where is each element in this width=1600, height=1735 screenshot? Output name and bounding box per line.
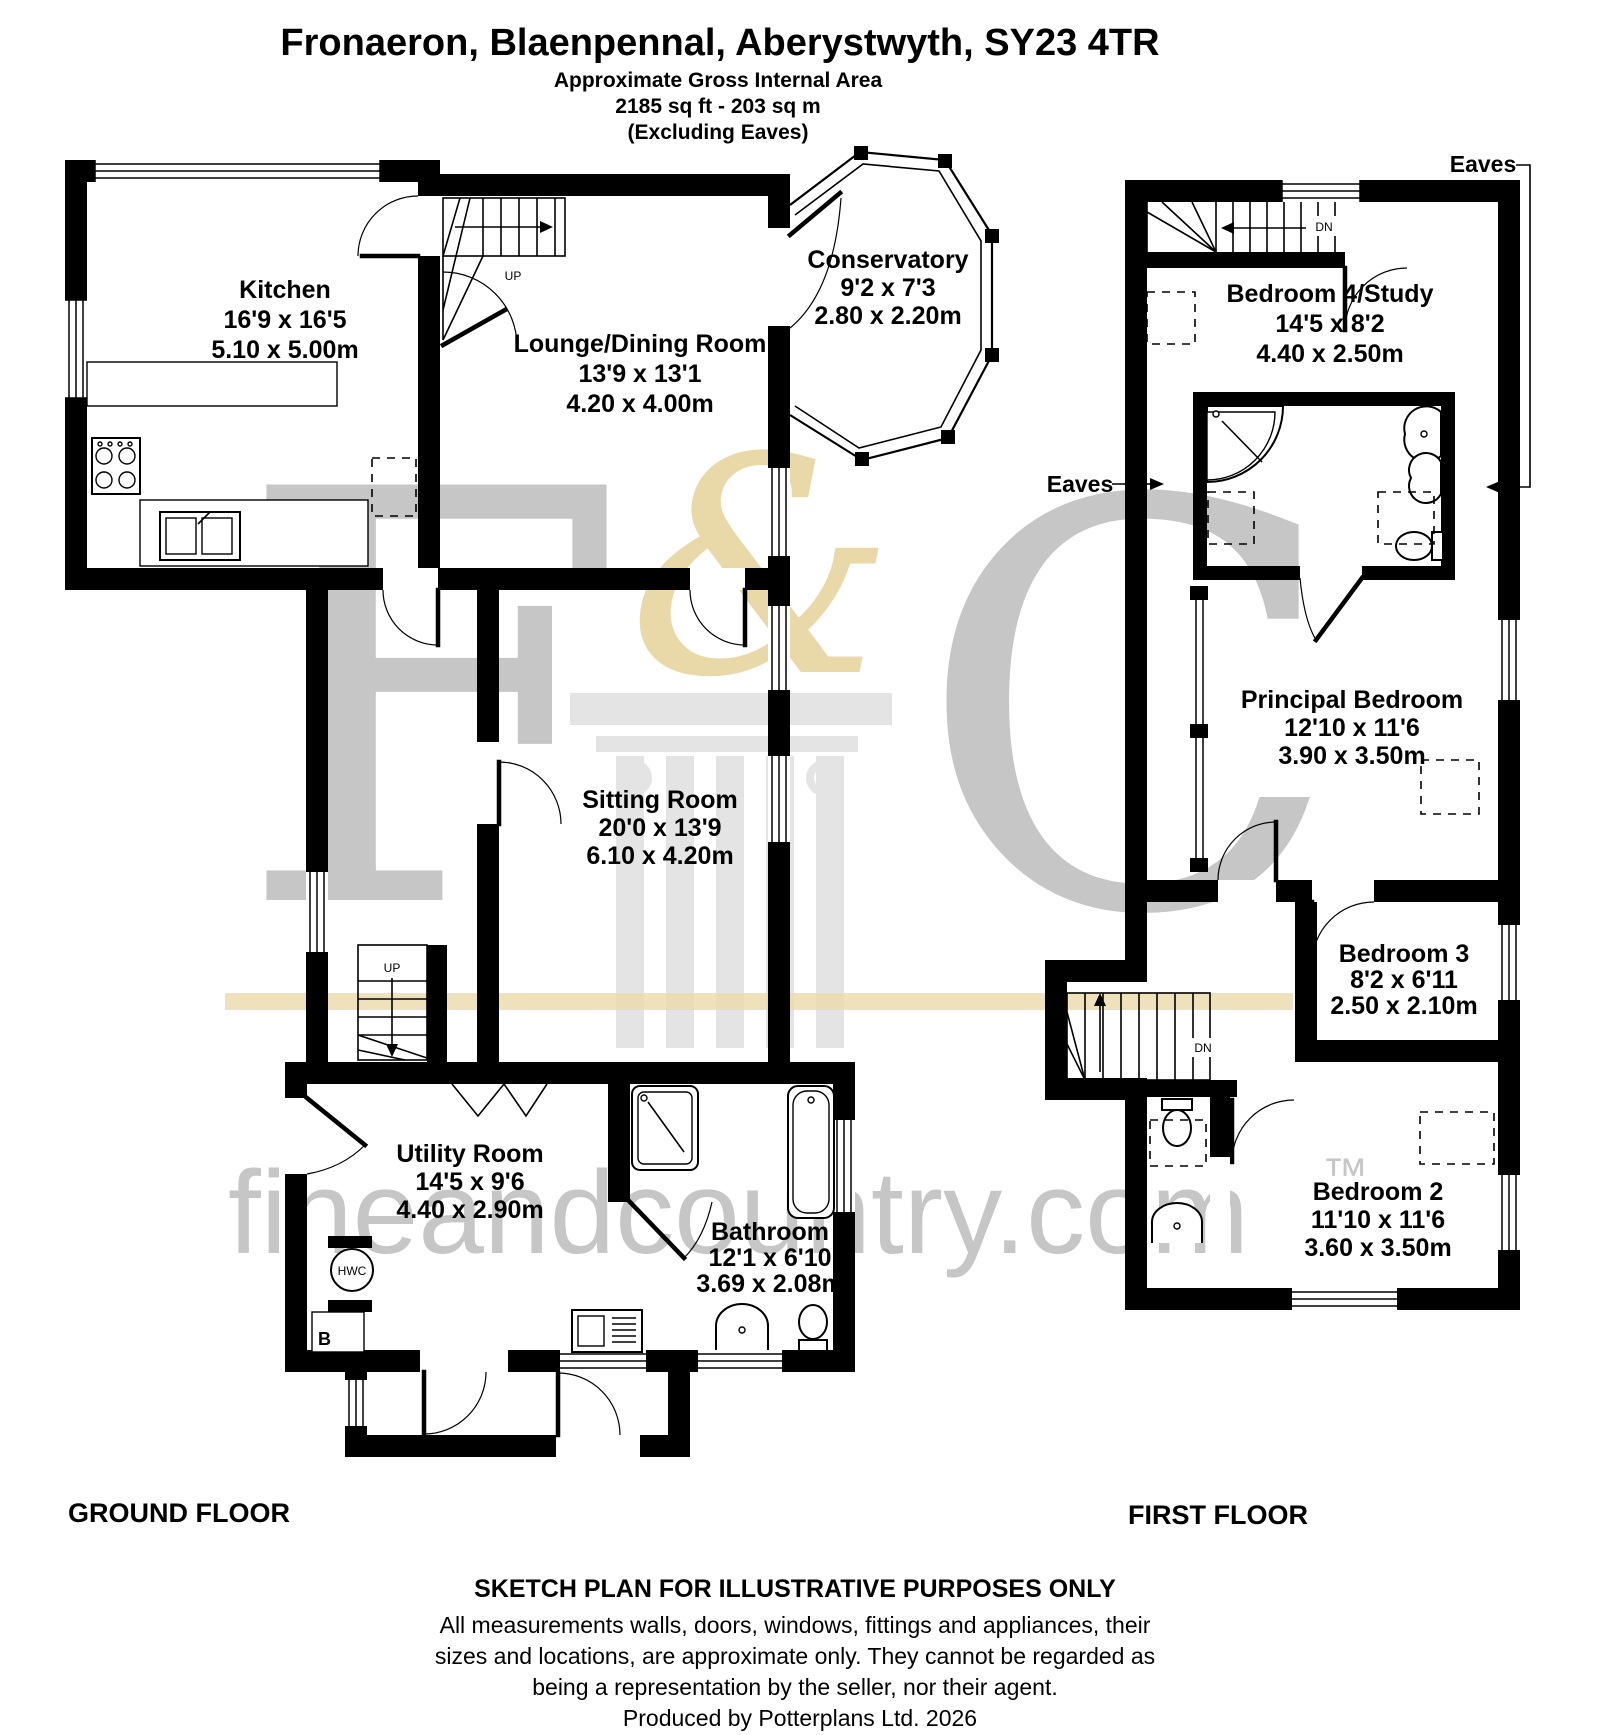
kitchen-label: Kitchen 16'9 x 16'5 5.10 x 5.00m <box>211 276 358 364</box>
bedroom4-dashed-unit <box>1147 292 1195 344</box>
ground-floor-label: GROUND FLOOR <box>68 1498 290 1528</box>
eaves-label-top-right: Eaves <box>1450 151 1517 177</box>
principal-dashed-unit <box>1421 760 1479 814</box>
utility-metric: 4.40 x 2.90m <box>396 1196 543 1224</box>
utility-bottom-window <box>560 1350 646 1372</box>
toilet-icon-ensuite <box>1396 532 1443 560</box>
bathroom-metric: 3.69 x 2.08m <box>696 1270 843 1298</box>
kitchen-left-window <box>65 300 87 398</box>
kitchen-imperial: 16'9 x 16'5 <box>223 306 346 334</box>
bathroom-name: Bathroom <box>711 1218 829 1246</box>
bathroom-bottom-window <box>698 1350 782 1372</box>
lounge-name: Lounge/Dining Room <box>514 330 767 358</box>
bathroom-imperial: 12'1 x 6'10 <box>708 1244 831 1272</box>
sitting-metric: 6.10 x 4.20m <box>586 842 733 870</box>
sitting-right-window-1 <box>768 606 790 690</box>
hob-icon <box>92 438 140 494</box>
hwc-icon: HWC <box>331 1249 373 1291</box>
bedroom3-metric: 2.50 x 2.10m <box>1330 992 1477 1020</box>
principal-imperial: 12'10 x 11'6 <box>1284 714 1420 742</box>
bedroom2-dashed-unit <box>1420 1112 1494 1164</box>
stairs-dn-label-mid: DN <box>1194 1041 1211 1055</box>
bidet-icon <box>1409 453 1441 503</box>
wc-sink-icon <box>1152 1203 1202 1243</box>
bathroom-right-window <box>833 1120 855 1212</box>
kitchen-name: Kitchen <box>239 276 331 304</box>
conservatory-metric: 2.80 x 2.20m <box>814 302 961 330</box>
lounge-imperial: 13'9 x 13'1 <box>578 360 701 388</box>
bedroom3-right-window <box>1498 925 1520 1000</box>
bedroom2-imperial: 11'10 x 11'6 <box>1311 1206 1445 1234</box>
first-floor-label: FIRST FLOOR <box>1128 1500 1308 1530</box>
conservatory-imperial: 9'2 x 7'3 <box>840 274 935 302</box>
kitchen-counter <box>87 362 337 406</box>
bedroom3-label: Bedroom 3 8'2 x 6'11 2.50 x 2.10m <box>1330 940 1477 1020</box>
bath-icon <box>788 1086 834 1218</box>
boiler-label: B <box>318 1329 331 1349</box>
bedroom3-imperial: 8'2 x 6'11 <box>1350 966 1458 994</box>
toilet-icon-wc <box>1162 1099 1192 1146</box>
header-subtitle: Approximate Gross Internal Area <box>554 69 883 92</box>
bedroom2-bottom-window <box>1292 1288 1397 1310</box>
sitting-name: Sitting Room <box>582 786 738 814</box>
utility-sink-icon <box>572 1310 642 1352</box>
page-title: Fronaeron, Blaenpennal, Aberystwyth, SY2… <box>280 22 1159 64</box>
bathroom-label: Bathroom 12'1 x 6'10 3.69 x 2.08m <box>696 1218 843 1298</box>
hall-left-window <box>306 872 328 952</box>
lounge-metric: 4.20 x 4.00m <box>566 390 713 418</box>
header-area-note: (Excluding Eaves) <box>628 121 809 144</box>
bedroom4-metric: 4.40 x 2.50m <box>1256 340 1403 368</box>
bathroom-sink-icon <box>716 1304 768 1350</box>
lounge-right-window <box>768 468 790 556</box>
stairs-up-label-top: UP <box>505 269 522 283</box>
bedroom4-name: Bedroom 4/Study <box>1227 280 1434 308</box>
bedroom4-imperial: 14'5 x 8'2 <box>1275 310 1384 338</box>
header-area: 2185 sq ft - 203 sq m <box>615 95 820 118</box>
kitchen-top-window <box>95 160 380 182</box>
landing-top-window <box>1282 180 1360 202</box>
sketch-plan-note: SKETCH PLAN FOR ILLUSTRATIVE PURPOSES ON… <box>474 1575 1116 1603</box>
eaves-label-left: Eaves <box>1047 471 1114 497</box>
hwc-label: HWC <box>338 1264 367 1278</box>
disclaimer-line-1: All measurements walls, doors, windows, … <box>440 1612 1151 1638</box>
porch-left-window <box>345 1380 367 1426</box>
bedroom2-name: Bedroom 2 <box>1313 1178 1444 1206</box>
utility-imperial: 14'5 x 9'6 <box>415 1168 524 1196</box>
utility-label: Utility Room 14'5 x 9'6 4.40 x 2.90m <box>396 1140 543 1224</box>
ground-floor-staircase-top: UP <box>443 198 565 346</box>
toilet-icon-ground <box>799 1305 827 1351</box>
floorplan-svg: F C & fineandcountry.com ™ Fronaeron, Bl… <box>0 0 1600 1735</box>
utility-name: Utility Room <box>396 1140 543 1168</box>
disclaimer-line-3: being a representation by the seller, no… <box>532 1674 1058 1700</box>
conservatory-name: Conservatory <box>807 246 968 274</box>
stairs-dn-label-top: DN <box>1315 220 1332 234</box>
kitchen-sink-icon <box>160 512 240 560</box>
bedroom3-name: Bedroom 3 <box>1339 940 1470 968</box>
principal-right-window <box>1498 620 1520 700</box>
disclaimer-line-2: sizes and locations, are approximate onl… <box>435 1643 1155 1669</box>
header: Fronaeron, Blaenpennal, Aberystwyth, SY2… <box>280 22 1159 144</box>
bedroom2-metric: 3.60 x 3.50m <box>1304 1234 1451 1262</box>
sitting-imperial: 20'0 x 13'9 <box>598 814 721 842</box>
producer-credit: Produced by Potterplans Ltd. 2026 <box>623 1705 977 1731</box>
sitting-room-label: Sitting Room 20'0 x 13'9 6.10 x 4.20m <box>582 786 738 870</box>
floorplan-page: F C & fineandcountry.com ™ Fronaeron, Bl… <box>0 0 1600 1735</box>
conservatory-label: Conservatory 9'2 x 7'3 2.80 x 2.20m <box>807 246 968 330</box>
bedroom2-right-window <box>1498 1175 1520 1250</box>
first-floor-staircase-top: DN <box>1147 202 1342 252</box>
footer: GROUND FLOOR FIRST FLOOR SKETCH PLAN FOR… <box>68 1498 1308 1731</box>
sitting-right-window-2 <box>768 756 790 842</box>
kitchen-metric: 5.10 x 5.00m <box>211 336 358 364</box>
stairs-up-label-hall: UP <box>384 961 401 975</box>
watermark-band <box>225 993 1293 1010</box>
principal-name: Principal Bedroom <box>1241 686 1463 714</box>
principal-metric: 3.90 x 3.50m <box>1278 742 1425 770</box>
shower-icon-ground <box>632 1086 698 1170</box>
bedroom2-label: Bedroom 2 11'10 x 11'6 3.60 x 3.50m <box>1304 1178 1451 1262</box>
bedroom4-label: Bedroom 4/Study 14'5 x 8'2 4.40 x 2.50m <box>1227 280 1434 368</box>
